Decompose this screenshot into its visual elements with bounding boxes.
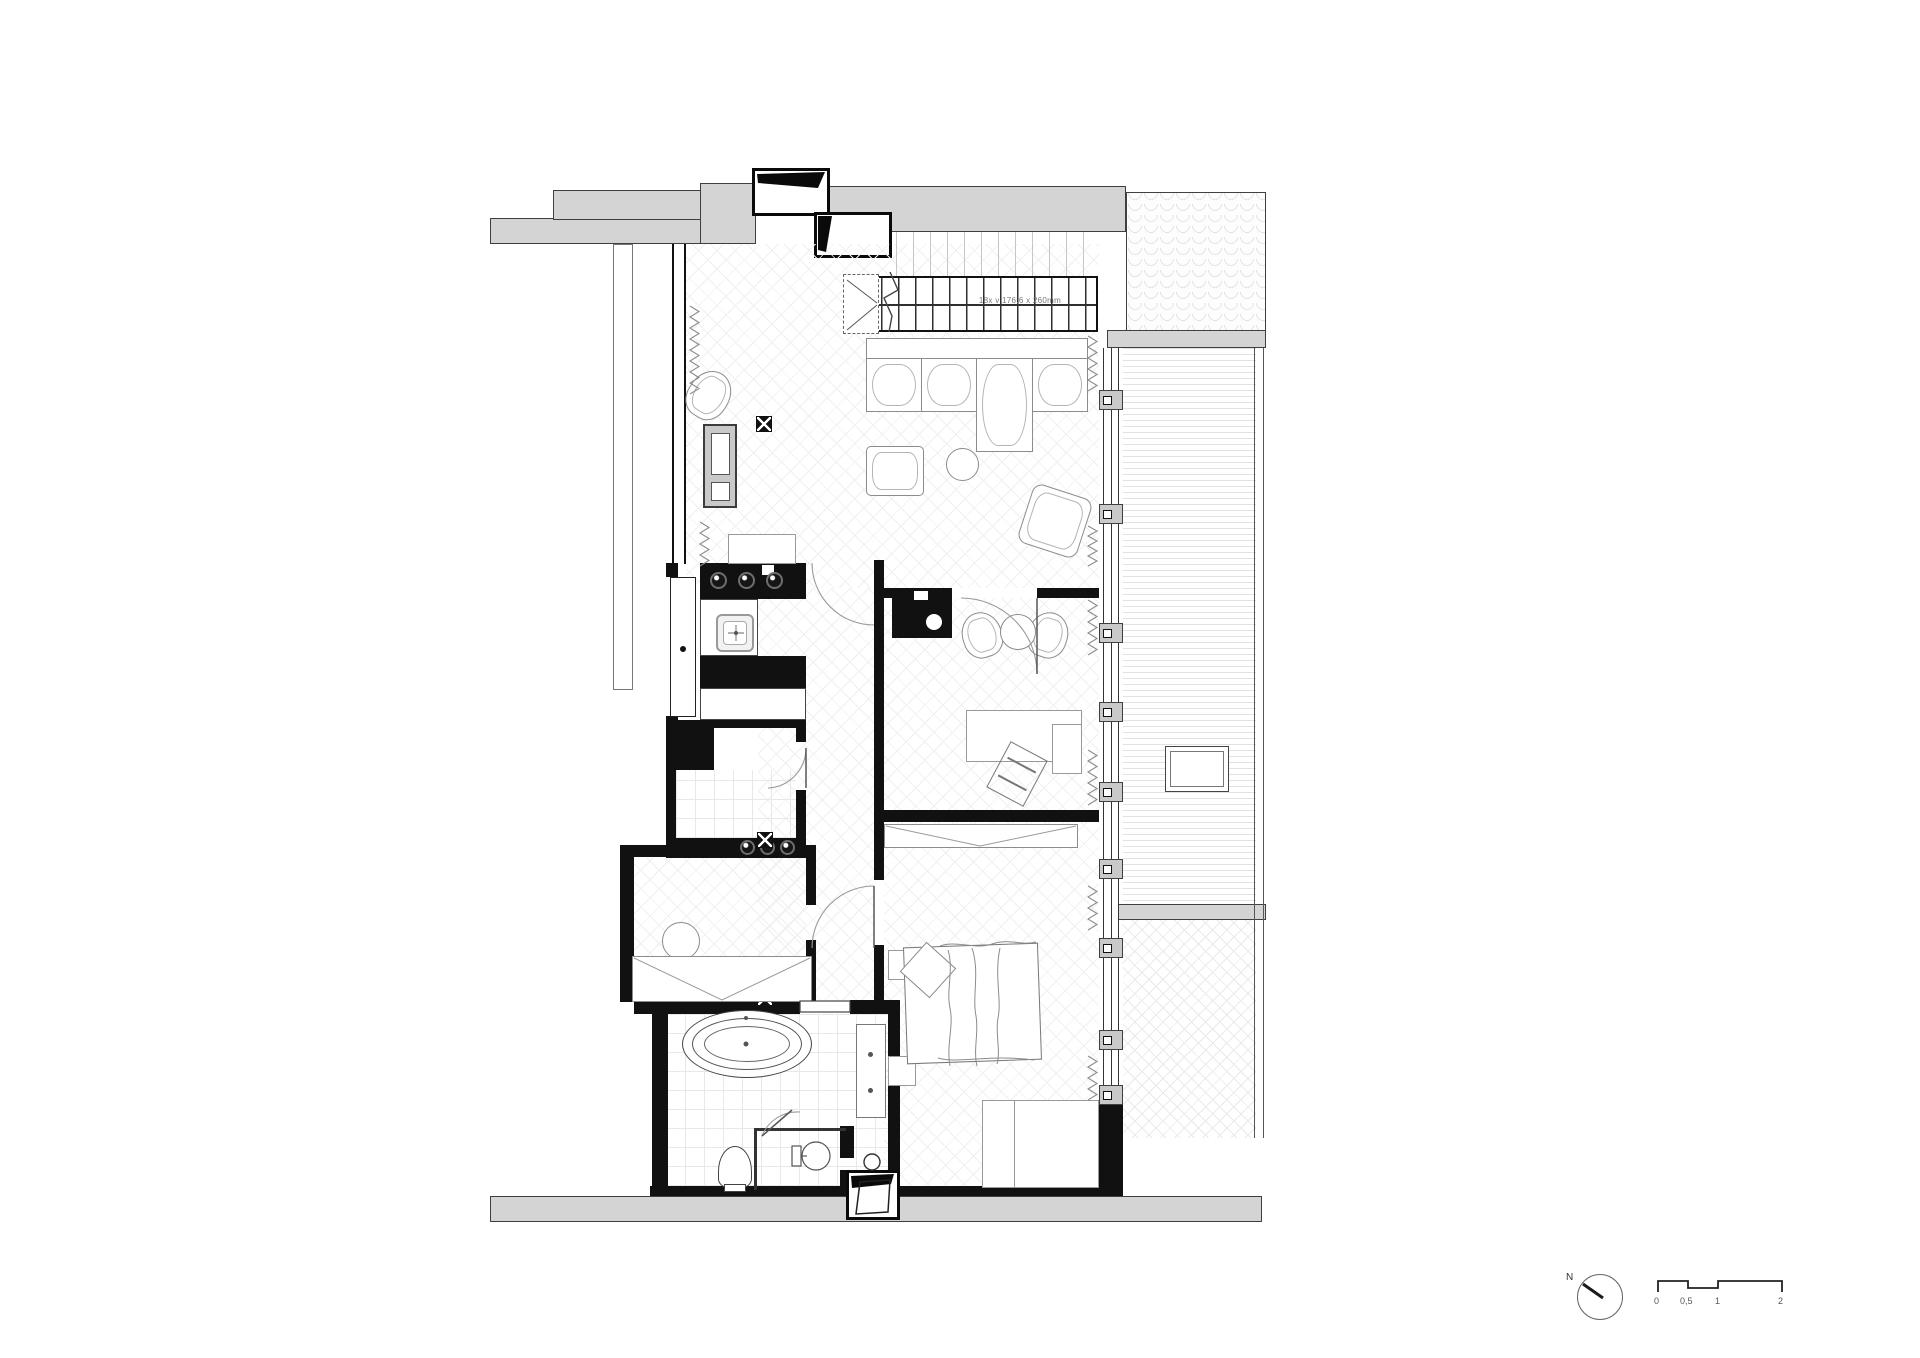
sink-drain xyxy=(734,631,738,635)
door-leaf xyxy=(762,1110,792,1136)
duvet-line xyxy=(948,950,951,1066)
door-swing-arc xyxy=(762,1112,800,1136)
curtain-symbol xyxy=(1088,336,1097,391)
curtain-symbol xyxy=(1088,1056,1097,1100)
floor-drain xyxy=(864,1154,880,1170)
door-swing-arc xyxy=(812,563,874,625)
duvet-edge xyxy=(938,1058,1034,1060)
north-needle-icon xyxy=(1583,1284,1603,1298)
tub-drain xyxy=(744,1042,749,1047)
duvet-line xyxy=(972,948,977,1066)
roof-opening-wedge xyxy=(757,172,825,188)
door-swing-arc xyxy=(812,886,874,948)
curtain-symbol xyxy=(1088,600,1097,655)
duvet-line xyxy=(997,948,1000,1064)
curtain-symbol xyxy=(700,522,709,566)
door-swing-arc xyxy=(768,748,806,788)
curtain-symbol xyxy=(1088,526,1097,566)
curtain-symbol xyxy=(1088,886,1097,930)
roof-opening-wedge xyxy=(818,216,832,252)
stair-break-line xyxy=(884,272,898,332)
wc-toilet-tank xyxy=(792,1146,801,1166)
closet-wardrobe-hatch xyxy=(634,958,810,1000)
bedroom-wardrobe-hatch xyxy=(886,826,1076,846)
plan-linework-overlay xyxy=(0,0,1920,1358)
stair-landing-diagonal xyxy=(847,280,877,330)
tub-overflow xyxy=(744,1016,748,1020)
media-unit-dish xyxy=(926,614,942,630)
duvet-fold xyxy=(940,942,1036,946)
door-swing-arc xyxy=(961,598,1037,674)
curtain-symbol xyxy=(690,306,699,394)
floor-plan-canvas: 18x v 176,6 x 260mm xyxy=(0,0,1920,1358)
curtain-symbol xyxy=(1088,750,1097,805)
bathroom-sliding-door xyxy=(800,1001,850,1012)
scale-bar-profile xyxy=(1658,1281,1782,1292)
